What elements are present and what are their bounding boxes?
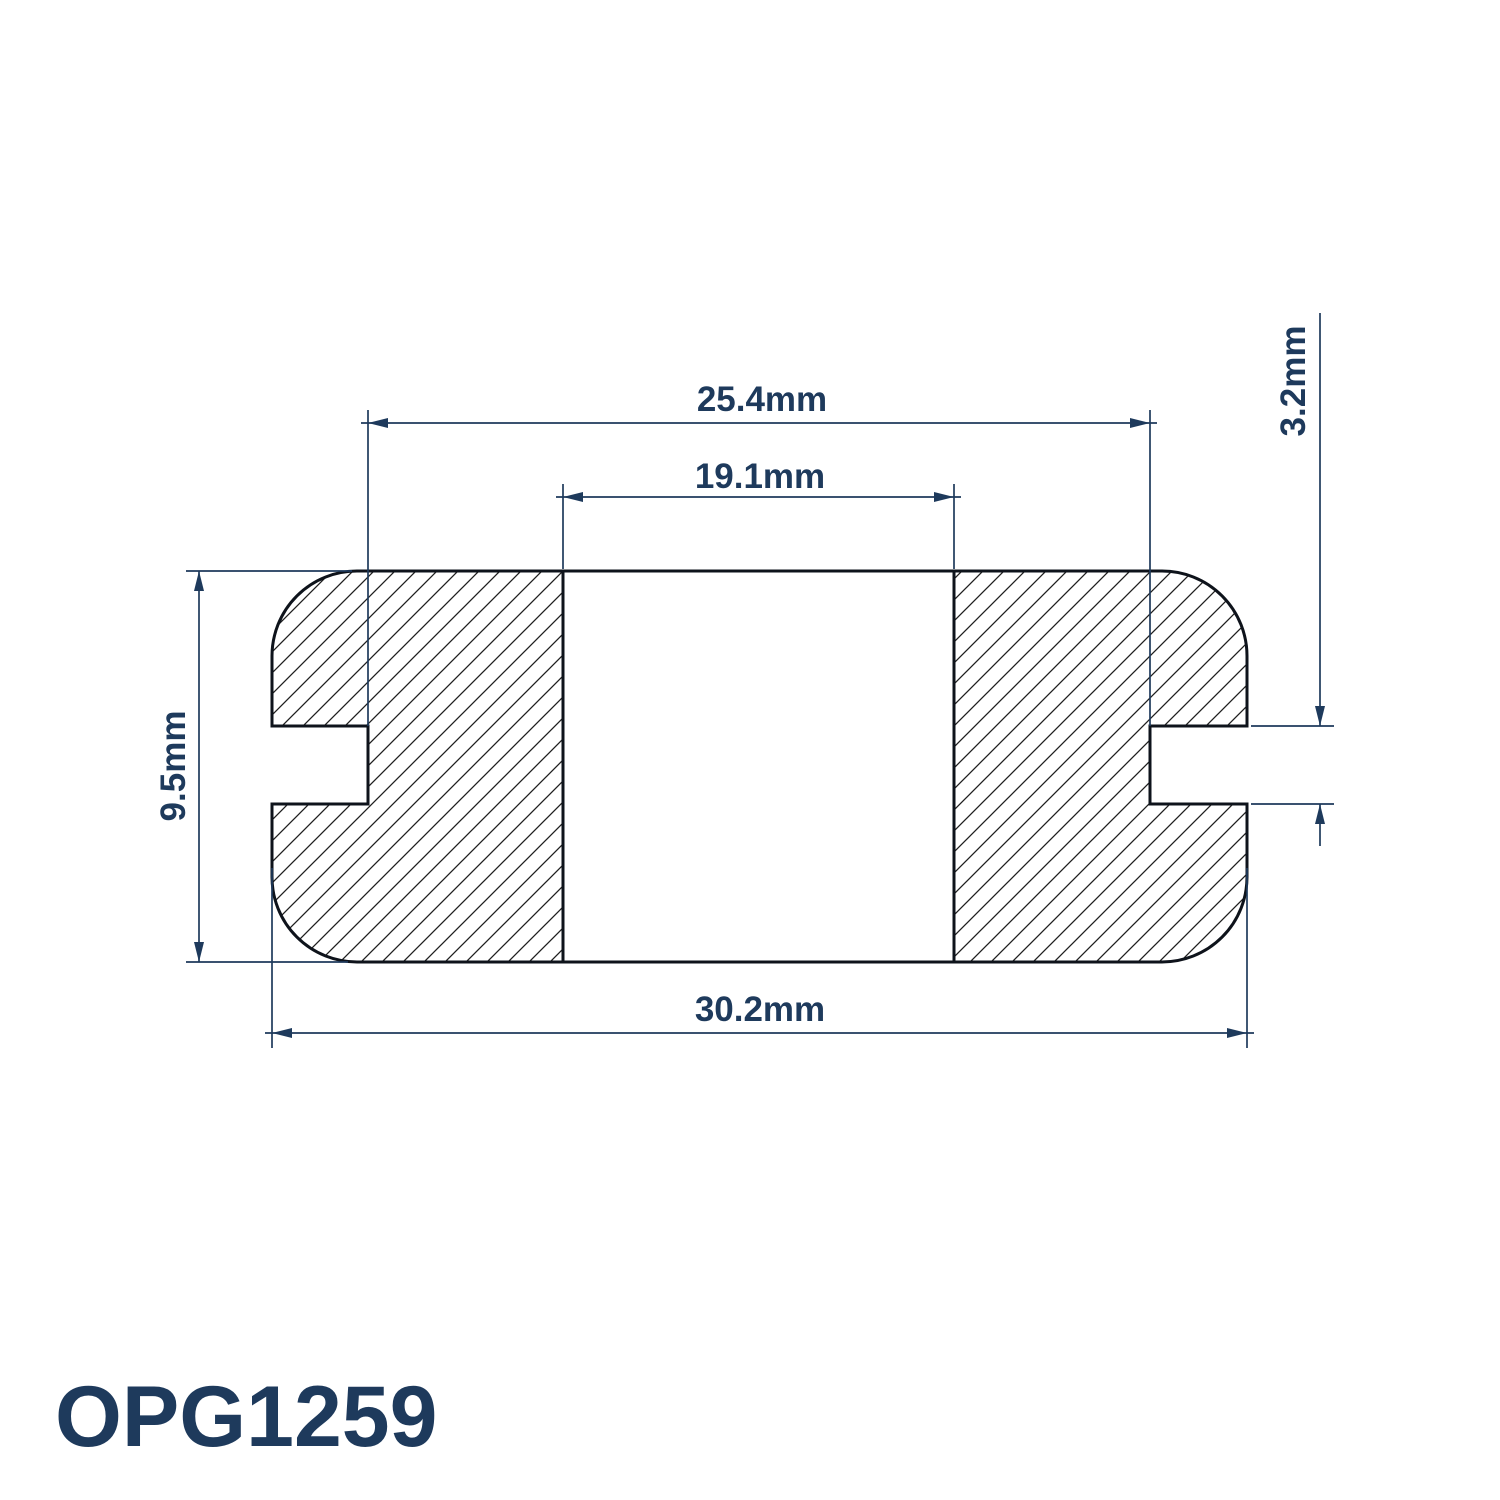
dimension-label: 9.5mm xyxy=(154,711,193,822)
dimension-label: 30.2mm xyxy=(695,990,825,1029)
arrow-right-icon xyxy=(934,492,954,502)
arrow-up-icon xyxy=(1315,804,1325,824)
dimension-label: 25.4mm xyxy=(697,380,827,419)
right-section-hatched xyxy=(954,571,1247,962)
arrow-right-icon xyxy=(1130,418,1150,428)
left-section-hatched xyxy=(272,571,563,962)
arrow-left-icon xyxy=(368,418,388,428)
arrow-down-icon xyxy=(194,942,204,962)
arrow-left-icon xyxy=(272,1028,292,1038)
technical-drawing-page: 25.4mm 19.1mm 30.2mm 9.5mm xyxy=(0,0,1500,1500)
arrow-up-icon xyxy=(194,571,204,591)
arrow-down-icon xyxy=(1315,706,1325,726)
grommet-profile xyxy=(272,571,1247,962)
part-number: OPG1259 xyxy=(55,1369,437,1465)
dimension-label: 3.2mm xyxy=(1274,326,1313,437)
dimension-groove-width: 3.2mm xyxy=(1251,313,1334,846)
arrow-left-icon xyxy=(563,492,583,502)
grommet-cross-section-drawing: 25.4mm 19.1mm 30.2mm 9.5mm xyxy=(0,0,1500,1500)
dimension-label: 19.1mm xyxy=(695,457,825,496)
dimension-inner-diameter: 19.1mm xyxy=(556,457,961,569)
arrow-right-icon xyxy=(1227,1028,1247,1038)
